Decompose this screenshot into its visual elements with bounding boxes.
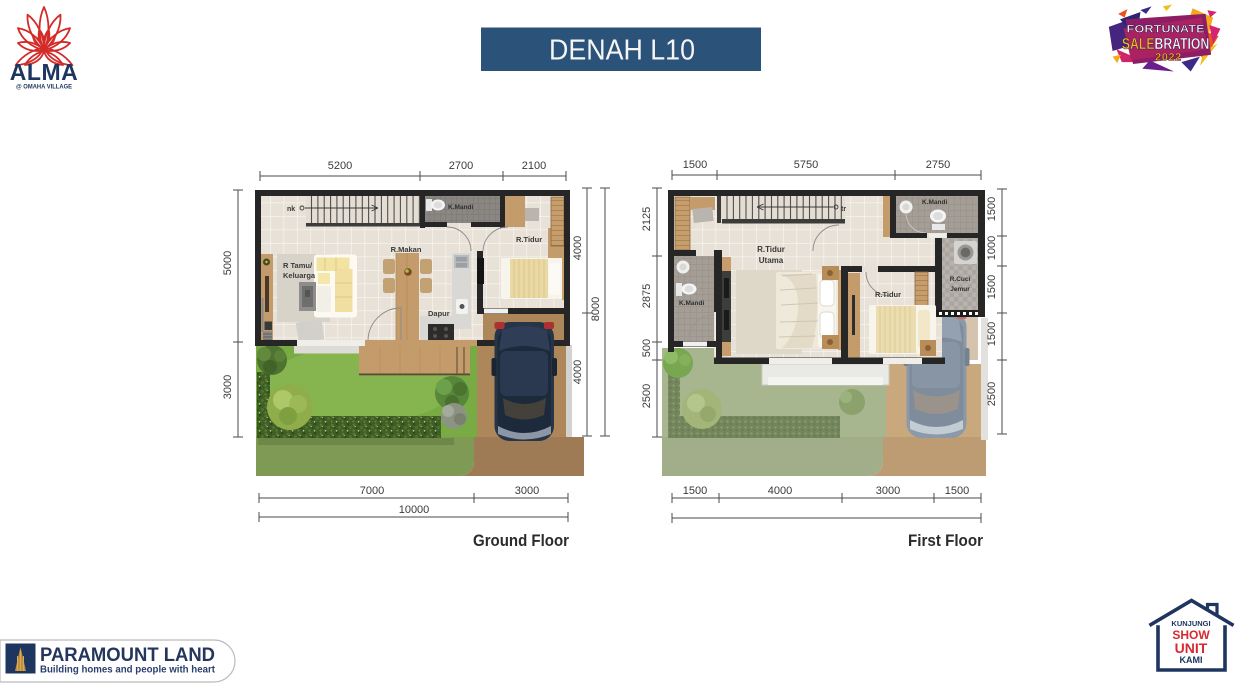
svg-text:Keluarga: Keluarga xyxy=(283,271,316,280)
svg-text:Utama: Utama xyxy=(759,256,784,265)
svg-text:2700: 2700 xyxy=(449,160,473,172)
svg-text:2022: 2022 xyxy=(1155,51,1182,63)
svg-text:7000: 7000 xyxy=(360,485,384,497)
svg-text:FORTUNATE: FORTUNATE xyxy=(1127,23,1205,35)
svg-text:R.Tidur: R.Tidur xyxy=(516,235,542,244)
svg-text:R.Tidur: R.Tidur xyxy=(757,245,785,254)
svg-text:2100: 2100 xyxy=(522,160,546,172)
svg-text:KUNJUNGI: KUNJUNGI xyxy=(1171,619,1210,628)
svg-text:R.Tidur: R.Tidur xyxy=(875,290,901,299)
svg-text:Building homes and people with: Building homes and people with heart xyxy=(40,664,215,676)
svg-text:4000: 4000 xyxy=(768,485,792,497)
svg-text:4000: 4000 xyxy=(572,360,584,384)
svg-text:DENAH L10: DENAH L10 xyxy=(549,35,695,67)
svg-text:5750: 5750 xyxy=(794,159,818,171)
svg-text:Ground Floor: Ground Floor xyxy=(473,531,569,550)
svg-text:1500: 1500 xyxy=(945,485,969,497)
svg-text:K.Mandi: K.Mandi xyxy=(922,199,947,206)
svg-text:1000: 1000 xyxy=(986,236,998,260)
svg-text:@ OMAHA VILLAGE: @ OMAHA VILLAGE xyxy=(16,84,72,91)
svg-text:2500: 2500 xyxy=(986,382,998,406)
svg-text:1500: 1500 xyxy=(986,275,998,299)
svg-text:4000: 4000 xyxy=(572,236,584,260)
svg-text:3000: 3000 xyxy=(876,485,900,497)
svg-text:2750: 2750 xyxy=(926,159,950,171)
svg-text:3000: 3000 xyxy=(222,375,234,399)
svg-text:UNIT: UNIT xyxy=(1175,640,1208,656)
svg-text:1500: 1500 xyxy=(986,197,998,221)
svg-text:500: 500 xyxy=(641,339,653,357)
svg-text:10000: 10000 xyxy=(399,504,430,516)
svg-text:R.Cuci: R.Cuci xyxy=(950,276,971,283)
svg-text:2125: 2125 xyxy=(641,207,653,231)
svg-text:K.Mandi: K.Mandi xyxy=(679,300,704,307)
svg-text:5000: 5000 xyxy=(222,251,234,275)
svg-text:1500: 1500 xyxy=(683,485,707,497)
svg-text:KAMI: KAMI xyxy=(1180,655,1203,665)
svg-text:First Floor: First Floor xyxy=(908,531,983,550)
svg-text:1500: 1500 xyxy=(683,159,707,171)
svg-text:3000: 3000 xyxy=(515,485,539,497)
svg-text:nk: nk xyxy=(287,206,295,213)
svg-text:5200: 5200 xyxy=(328,160,352,172)
svg-text:Dapur: Dapur xyxy=(428,309,450,318)
svg-text:R.Makan: R.Makan xyxy=(391,245,422,254)
svg-text:Jemur: Jemur xyxy=(950,286,970,293)
svg-text:2875: 2875 xyxy=(641,284,653,308)
svg-text:tr: tr xyxy=(841,206,846,213)
svg-text:1500: 1500 xyxy=(986,322,998,346)
svg-text:2500: 2500 xyxy=(641,384,653,408)
svg-text:8000: 8000 xyxy=(590,297,602,321)
svg-text:K.Mandi: K.Mandi xyxy=(448,204,473,211)
svg-text:R Tamu/: R Tamu/ xyxy=(283,261,313,270)
svg-text:ALMA: ALMA xyxy=(10,59,78,85)
